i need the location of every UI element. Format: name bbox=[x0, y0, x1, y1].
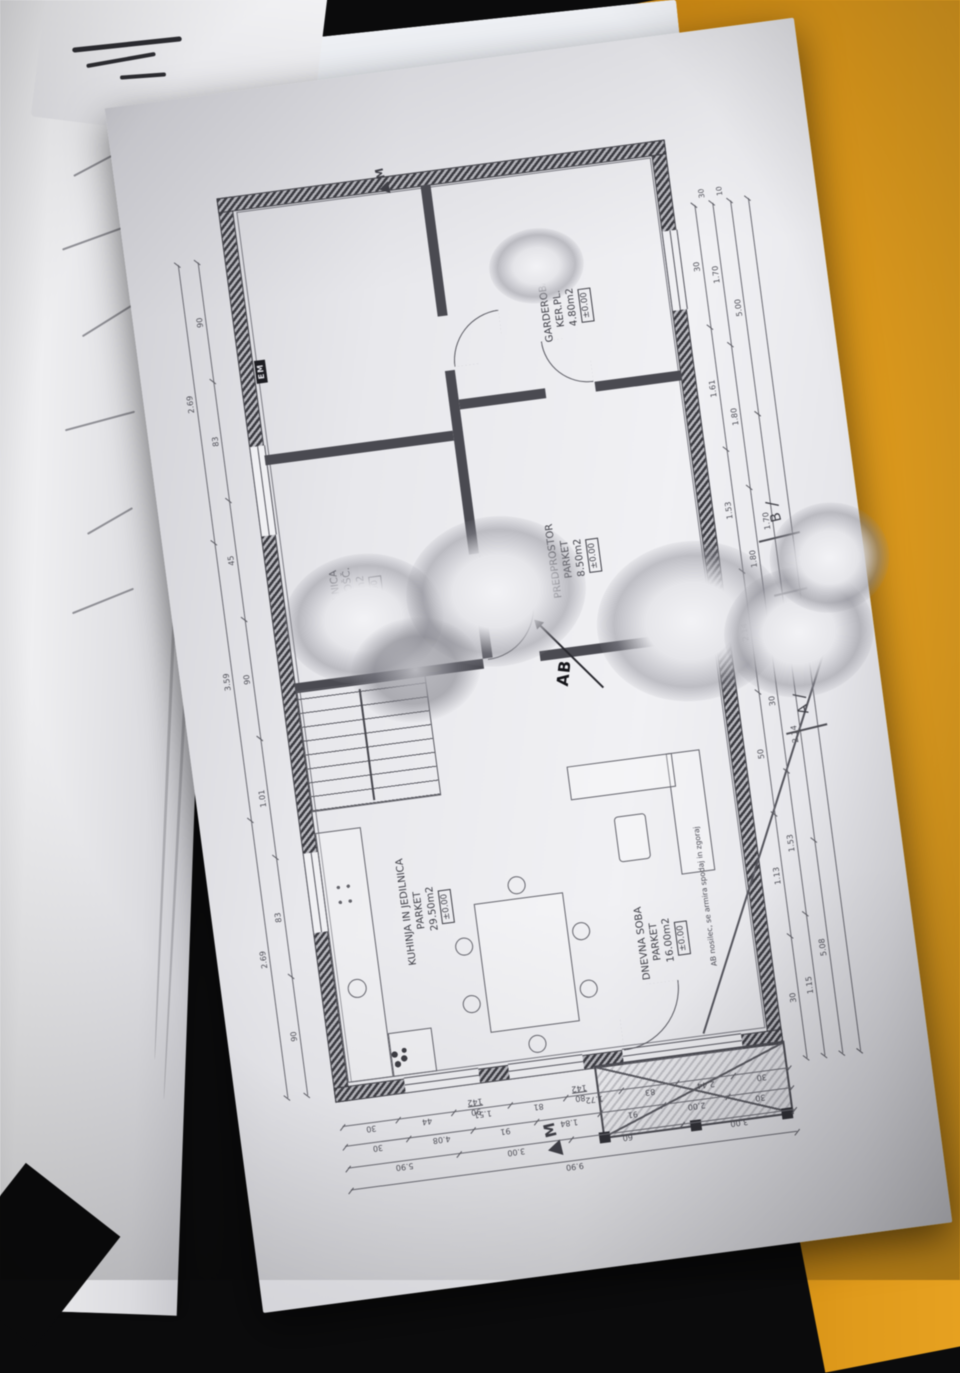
dimension-label: 83 bbox=[266, 856, 302, 978]
room-floor: PARKET bbox=[406, 856, 433, 964]
section-ab-stamp: AB bbox=[553, 659, 575, 688]
wall-inner-face bbox=[236, 157, 765, 1082]
dimension-label: 30 bbox=[341, 1109, 400, 1137]
section-mark-line bbox=[759, 531, 800, 542]
dimension-label: 5.08 bbox=[804, 839, 853, 1055]
door-arc-wardrobe bbox=[541, 335, 594, 388]
window-tag: 80 142 bbox=[571, 1082, 589, 1102]
wall-top bbox=[218, 198, 350, 1102]
terrace-door-opening bbox=[622, 1033, 743, 1065]
wall-right bbox=[218, 141, 666, 213]
dimension-label: 30 bbox=[758, 628, 798, 773]
room-area: 8.50m2 bbox=[569, 520, 592, 596]
room-floor: PARKET bbox=[644, 904, 667, 979]
dimension-label: 90 bbox=[282, 975, 318, 1097]
dimension-chain: 3.00603.005.90 bbox=[347, 1099, 795, 1169]
window-top-2 bbox=[249, 445, 277, 536]
chair-icon bbox=[462, 994, 482, 1014]
dimension-chain: 302.44831.72811.514430 bbox=[341, 1057, 789, 1127]
room-label-hall: PREDPROSTOR PARKET 8.50m2 ±0.00 bbox=[543, 518, 605, 599]
window-height: 142 bbox=[571, 1082, 587, 1094]
dimension-chain: 301.13502.141.531.6130 bbox=[694, 204, 817, 1058]
dimension-label: 2.14 bbox=[776, 625, 825, 841]
dining-table bbox=[474, 892, 580, 1033]
interior-wall bbox=[420, 184, 447, 316]
chair-icon bbox=[454, 936, 474, 956]
north-arrow-small: M bbox=[373, 167, 392, 196]
dimension-label: 1.53 bbox=[717, 447, 754, 572]
dimension-label: 1.13 bbox=[765, 813, 802, 938]
beam-note: AB nosilec, se armira spodaj in zgoraj bbox=[686, 787, 718, 967]
room-level: ±0.00 bbox=[585, 538, 602, 573]
stove-icon bbox=[331, 877, 357, 910]
interior-wall bbox=[476, 608, 492, 659]
north-arrow: M bbox=[540, 1121, 566, 1159]
dimension-label: 60 bbox=[570, 1114, 684, 1150]
dimension-label: 90 bbox=[235, 618, 271, 740]
dimension-label: 1.72 bbox=[564, 1079, 623, 1107]
dimension-chain: 302.00911.84914.0830 bbox=[344, 1077, 792, 1147]
sofa bbox=[567, 753, 677, 801]
smudge bbox=[344, 610, 487, 731]
dimension-label: 1.70 bbox=[748, 412, 797, 628]
window-bottom-1 bbox=[662, 230, 688, 311]
em-box: EM bbox=[254, 359, 268, 384]
dimension-label: 83 bbox=[620, 1072, 679, 1100]
room-level: ±0.00 bbox=[438, 889, 455, 924]
dimension-label: 1.15 bbox=[796, 912, 836, 1057]
dimension-label: 44 bbox=[397, 1101, 456, 1129]
room-label-bathroom: KOPALNICA KER.PLOŠČ. 3.90m2 ±0.00 bbox=[327, 563, 387, 628]
dimension-chain: 90831.0190458390 bbox=[198, 261, 319, 1095]
room-level: ±0.00 bbox=[674, 920, 691, 955]
room-area: 29.50m2 bbox=[419, 854, 446, 962]
room-level: ±0.00 bbox=[577, 287, 594, 322]
dimension-label: 2.44 bbox=[676, 1065, 735, 1093]
door-arc-living bbox=[481, 601, 540, 660]
dimension-label: 1.80 bbox=[721, 344, 761, 489]
dimension-label: 50 bbox=[749, 691, 786, 816]
dimension-label: 10 bbox=[714, 186, 724, 197]
north-letter: M bbox=[373, 167, 388, 181]
dimension-label: 1.70 bbox=[702, 201, 742, 346]
dimension-label: 91 bbox=[599, 1094, 665, 1123]
section-letter: A bbox=[795, 703, 813, 716]
dimension-label: 30 bbox=[684, 204, 721, 329]
dimension-label: 5.90 bbox=[347, 1143, 461, 1179]
smudge bbox=[716, 558, 882, 706]
wall-bottom bbox=[651, 141, 783, 1045]
dimension-label: 30 bbox=[726, 1077, 792, 1106]
dimension-chain: 1.151.53301.801.801.70 bbox=[712, 201, 835, 1055]
section-mark-a: A∕ bbox=[789, 692, 812, 717]
plant-scribble bbox=[388, 1043, 415, 1072]
terrace-post bbox=[599, 1131, 611, 1143]
dimension-label: 1.53 bbox=[777, 770, 817, 915]
interior-wall bbox=[294, 659, 484, 694]
photo-scene: 0 — KONČNI KONČNIK 0 KOPJE bbox=[0, 0, 960, 1280]
dimension-label: 30 bbox=[696, 188, 706, 199]
terrace bbox=[594, 1041, 794, 1139]
dimension-label: 91 bbox=[471, 1111, 537, 1140]
room-floor: KER.PL. bbox=[549, 276, 570, 341]
chair-icon bbox=[571, 921, 591, 941]
stairs bbox=[296, 674, 441, 812]
dimension-label: 9.90 bbox=[350, 1121, 799, 1201]
smudge bbox=[276, 544, 452, 694]
smudge bbox=[587, 529, 796, 712]
window-left-1 bbox=[404, 1068, 480, 1094]
dimension-label: 1.84 bbox=[535, 1102, 601, 1131]
section-mark-b: B∕ bbox=[762, 500, 785, 525]
slash-icon: ∕ bbox=[789, 693, 808, 700]
window-height: 142 bbox=[467, 1096, 483, 1108]
door-arc-terrace bbox=[616, 980, 687, 1051]
smudge bbox=[397, 505, 595, 677]
dimension-label: 30 bbox=[732, 1057, 791, 1085]
window-top-1 bbox=[303, 852, 329, 933]
room-name: GARDEROBA bbox=[536, 278, 557, 343]
window-width: 90 bbox=[471, 1107, 482, 1117]
room-level: ±0.00 bbox=[368, 575, 385, 610]
chair-icon bbox=[527, 1034, 547, 1054]
dimension-label: 2.14 bbox=[733, 569, 770, 694]
room-name: KUHINJA IN JEDILNICA bbox=[393, 858, 420, 966]
room-area: 4.80m2 bbox=[561, 274, 582, 339]
dimension-label: 1.61 bbox=[700, 326, 737, 451]
triangle-icon bbox=[546, 1139, 563, 1158]
sofa bbox=[666, 749, 716, 874]
interior-wall bbox=[264, 431, 454, 466]
north-letter: M bbox=[540, 1121, 561, 1140]
dimension-label: 90 bbox=[188, 261, 224, 383]
dimension-label: 81 bbox=[509, 1087, 568, 1115]
chair-icon bbox=[507, 875, 527, 895]
fridge bbox=[388, 1028, 437, 1077]
dimension-chain: 9.90 bbox=[350, 1121, 798, 1191]
dimension-label: 2.00 bbox=[663, 1086, 729, 1115]
chair-icon bbox=[579, 979, 599, 999]
dimension-label: 3.00 bbox=[458, 1128, 572, 1164]
interior-wall bbox=[539, 628, 716, 661]
dimension-label: 30 bbox=[344, 1128, 410, 1157]
section-letter: B bbox=[767, 511, 785, 524]
terrace-post bbox=[690, 1119, 702, 1131]
room-name: DNEVNA SOBA bbox=[632, 906, 655, 981]
room-label-kitchen-dining: KUHINJA IN JEDILNICA PARKET 29.50m2 ±0.0… bbox=[393, 852, 460, 966]
room-area: 3.90m2 bbox=[353, 565, 373, 624]
stairs-arrow bbox=[359, 689, 375, 800]
dimension-label: 1.01 bbox=[250, 737, 286, 859]
terrace-post bbox=[781, 1107, 793, 1119]
dimension-label: 1.51 bbox=[453, 1094, 512, 1122]
section-ab-arrow bbox=[535, 620, 604, 688]
door-arc-bathroom bbox=[479, 548, 538, 607]
slash-icon: ∕ bbox=[762, 501, 781, 508]
dimension-label: 2.69 bbox=[168, 264, 225, 544]
room-name: PREDPROSTOR bbox=[543, 523, 566, 599]
interior-wall bbox=[459, 388, 547, 409]
room-label-living: DNEVNA SOBA PARKET 16.00m2 ±0.00 bbox=[632, 901, 694, 981]
dimension-label: 30 bbox=[781, 935, 818, 1060]
room-floor: KER.PLOŠČ. bbox=[340, 567, 360, 626]
interior-wall bbox=[595, 370, 683, 391]
room-area: 16.00m2 bbox=[657, 903, 680, 978]
interior-wall bbox=[445, 370, 479, 555]
dimension-label: 5.00 bbox=[720, 199, 769, 415]
room-name: KOPALNICA bbox=[327, 568, 347, 627]
dimension-label: 3.00 bbox=[681, 1099, 795, 1135]
dimension-label: 1.80 bbox=[740, 486, 780, 631]
window-width: 80 bbox=[575, 1093, 586, 1103]
triangle-icon bbox=[378, 181, 391, 195]
wall-left bbox=[335, 1030, 783, 1102]
section-dash bbox=[774, 587, 807, 596]
dimension-label: 3.59 bbox=[204, 541, 261, 821]
dimension-label: 4.08 bbox=[408, 1119, 474, 1148]
door-arc-room bbox=[448, 310, 505, 367]
floor-plan-drawing: 90 142 80 142 bbox=[132, 77, 904, 1241]
room-label-wardrobe: GARDEROBA KER.PL. 4.80m2 ±0.00 bbox=[536, 273, 597, 343]
kitchen-counter bbox=[315, 827, 393, 1083]
dimension-label: 2.69 bbox=[241, 819, 298, 1099]
sink-icon bbox=[347, 978, 368, 999]
section-mark-line bbox=[786, 723, 827, 734]
room-floor: PARKET bbox=[556, 521, 579, 597]
smudge bbox=[484, 222, 588, 309]
section-diagonal-line bbox=[703, 633, 831, 1034]
coffee-table bbox=[614, 813, 652, 863]
dimension-chain: 2.693.592.69 bbox=[178, 264, 299, 1098]
dimension-label: 45 bbox=[219, 499, 255, 621]
window-tag: 90 142 bbox=[467, 1096, 485, 1116]
dimension-label: 83 bbox=[203, 380, 239, 502]
window-left-2 bbox=[508, 1054, 584, 1080]
